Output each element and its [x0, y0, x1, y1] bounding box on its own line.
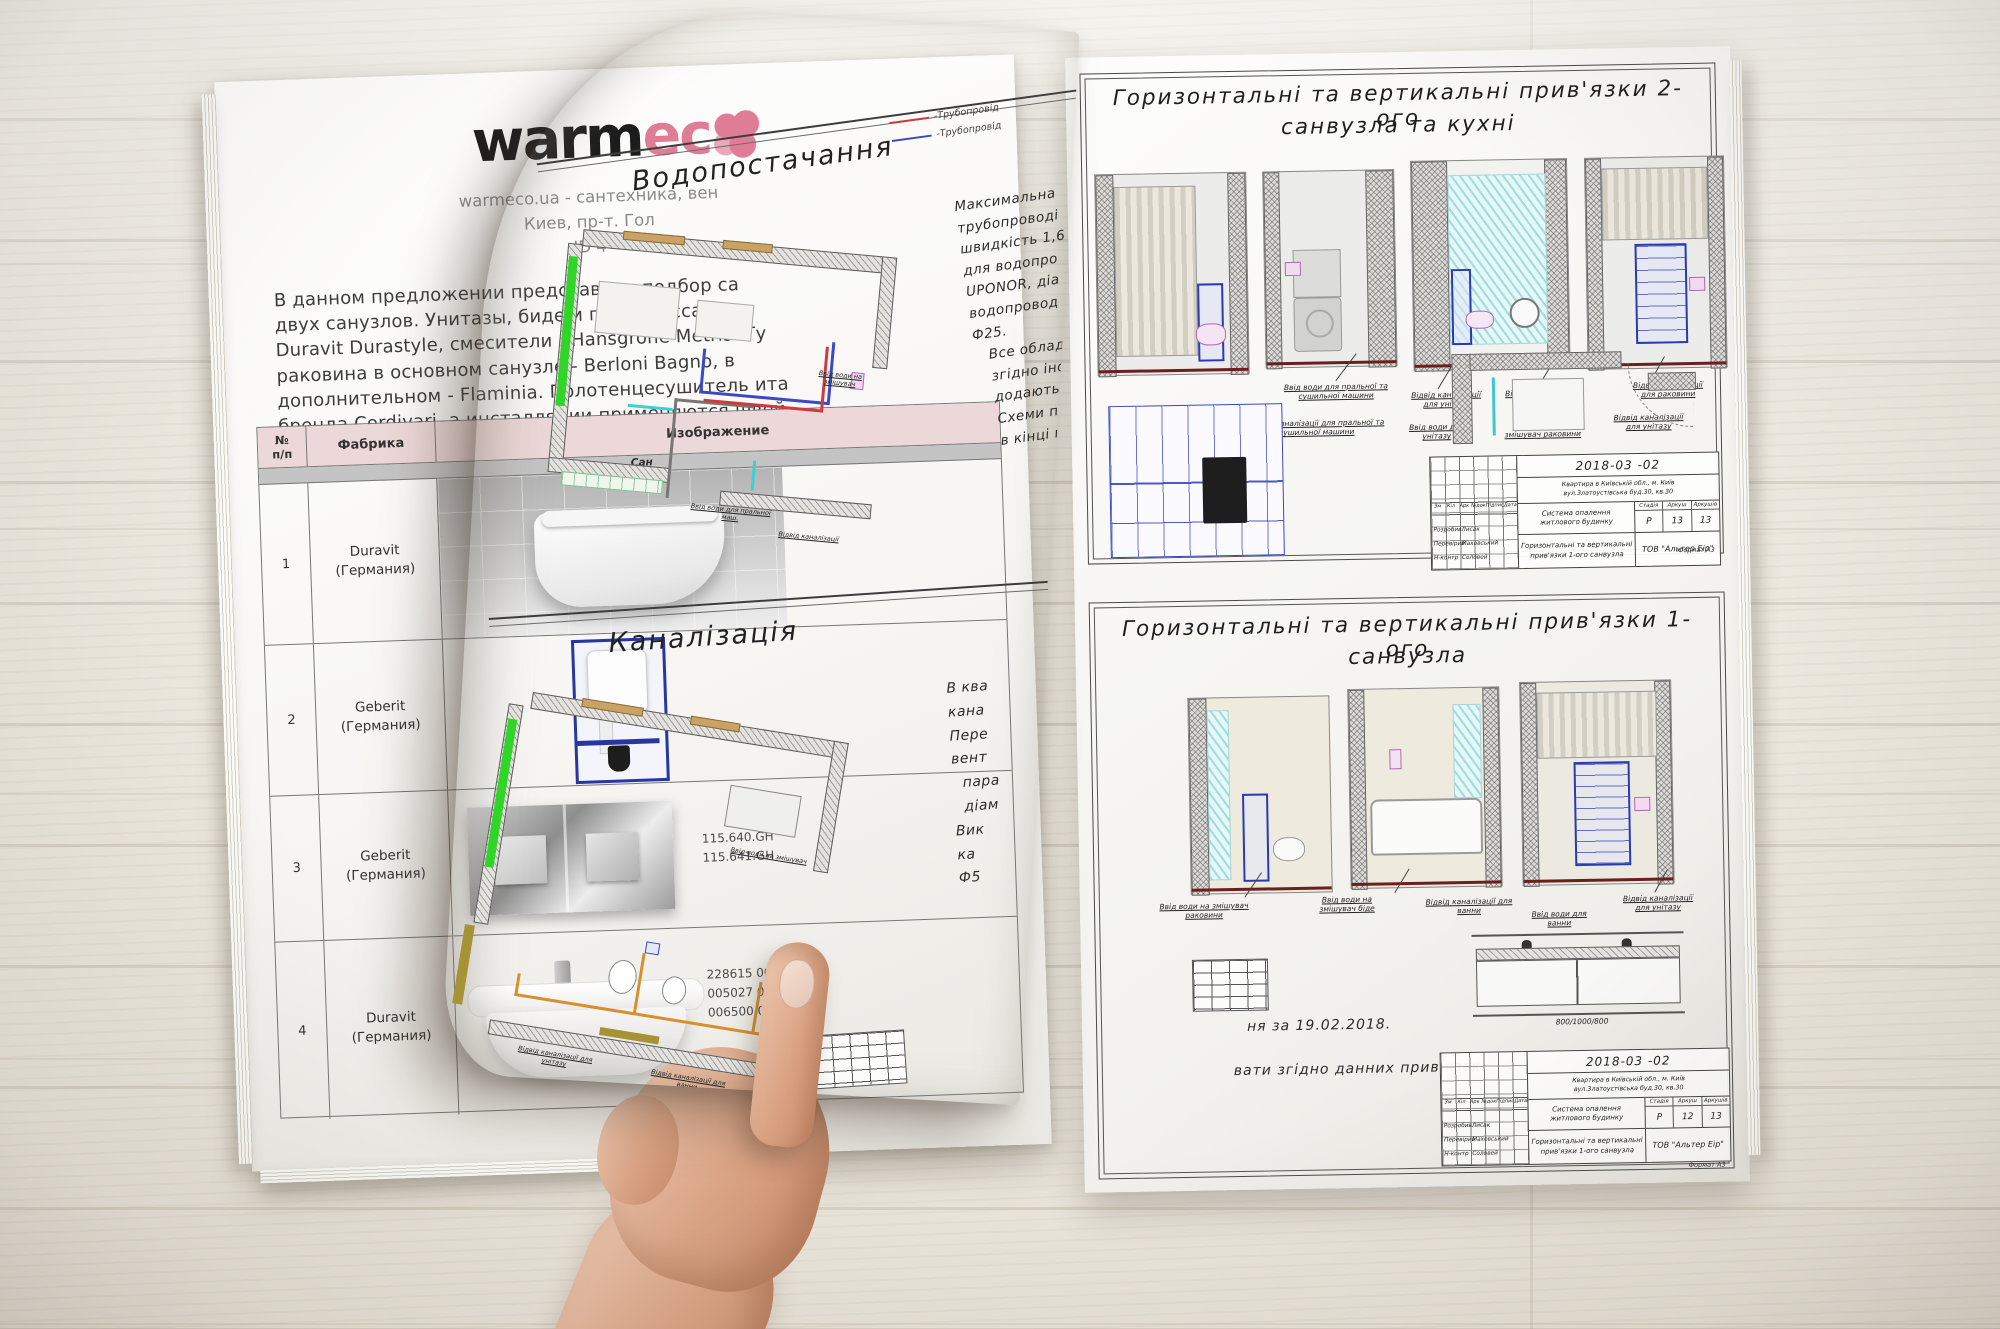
- col-header-num: № п/п: [257, 426, 307, 468]
- cabinet-outline: [1476, 957, 1681, 1007]
- curtain-area: [1113, 186, 1198, 357]
- annotation-label: Ввід води на змішувач раковини: [1159, 901, 1249, 921]
- stage-header: Стадія: [1645, 1097, 1672, 1106]
- row-brand: Geberit (Германия): [314, 640, 448, 794]
- title-block-stamp: Зм Кіл Арк №док Підпис Дата Розробив Лис…: [1440, 1047, 1732, 1166]
- format-label: Формат А3: [1678, 546, 1715, 555]
- section-detail: [1451, 332, 1699, 444]
- stamp-doc-title: Горизонтальні та вертикальні прив'язки 1…: [1529, 1129, 1647, 1164]
- wall-hatch: [1263, 172, 1282, 369]
- stamp-system: Система опалення житлового будинку: [1528, 1098, 1646, 1130]
- water-notes: Максимальна трубопроводі швидкість 1,6 д…: [953, 178, 1079, 454]
- valve-magenta: [1689, 277, 1705, 291]
- stamp-col: Кіл: [1455, 1099, 1468, 1105]
- total-header: Аркушів: [1702, 1096, 1729, 1105]
- wall-hatch: [1348, 690, 1367, 890]
- stamp-role: Розробив: [1444, 1123, 1472, 1129]
- stamp-object-line: вул.Златоустівська буд.30, кв.30: [1574, 1084, 1684, 1094]
- toilet-unit: [1242, 793, 1270, 881]
- furniture-outline: [594, 281, 680, 340]
- stamp-name: Лисак: [1472, 1123, 1490, 1129]
- floor-line: [1099, 368, 1249, 374]
- legend-label: -Трубопровід: [936, 120, 1002, 140]
- floor-line: [1524, 877, 1674, 883]
- glass-strip: [1452, 704, 1482, 798]
- dimension-text: 800/1000/800: [1537, 1016, 1627, 1027]
- stamp-grid-headers: Зм Кіл Арк №док Підпис Дата: [1431, 502, 1517, 510]
- stamp-object-line: вул.Златоустівська буд.30, кв.30: [1563, 488, 1673, 498]
- stamp-grid-headers: Зм Кіл Арк №док Підпис Дата: [1441, 1098, 1527, 1106]
- total-value: 13: [1702, 1105, 1730, 1126]
- stamp-col: Підпис: [1496, 1098, 1514, 1104]
- stamp-col: №док: [1481, 1099, 1496, 1105]
- wall-hatch: [1411, 161, 1451, 372]
- brand-name: Duravit: [349, 541, 399, 562]
- stamp-system-line: житлового будинку: [1540, 517, 1613, 527]
- row-num: 4: [275, 941, 330, 1121]
- valve-magenta: [1634, 797, 1650, 811]
- total-header: Аркушів: [1692, 501, 1719, 510]
- dim-line: [1473, 1011, 1685, 1016]
- flipping-page: Водопостачання -Трубопровід -Трубопровід: [440, 0, 1079, 1105]
- row-brand: Duravit (Германия): [324, 936, 459, 1118]
- annotation-label: Ввід води на змішувач біде: [1305, 894, 1389, 914]
- stage-header: Стадія: [1635, 502, 1662, 511]
- elevation-view: [1094, 172, 1250, 377]
- bathtub-shape: [1370, 798, 1483, 856]
- door-swing-arc: [1628, 362, 1694, 428]
- stamp-col: Дата: [1504, 502, 1517, 508]
- elevation-view: [1519, 679, 1675, 886]
- row-num: 3: [270, 795, 324, 942]
- sheet-value: 12: [1674, 1106, 1702, 1127]
- elevation-view: [1347, 686, 1502, 889]
- wall-hatch: [1365, 170, 1396, 367]
- basin-outline: [1273, 837, 1305, 862]
- stamp-col: Зм: [1441, 1099, 1454, 1105]
- pipe-blue: [699, 348, 706, 393]
- stamp-name: Соловей: [1472, 1151, 1498, 1157]
- installation-frame-unit: [1574, 761, 1632, 866]
- stamp-stage-block: СтадіяР Аркуш12 Аркушів13: [1645, 1096, 1730, 1127]
- kitchen-elevation: [1108, 403, 1285, 558]
- stamp-signature-grid: Зм Кіл Арк №док Підпис Дата Розробив Лис…: [1441, 1052, 1530, 1166]
- sewer-title: Каналізація: [608, 616, 799, 660]
- wall-hatch: [1482, 687, 1501, 887]
- row-num: 2: [265, 644, 319, 796]
- stamp-col: Арк: [1468, 1099, 1481, 1105]
- stamp-col: №док: [1471, 503, 1486, 509]
- stamp-object: Квартира в Київській обл., м. Київ вул.З…: [1518, 475, 1719, 505]
- annotation-label: Ввід води для пральної та сушильної маши…: [1282, 381, 1390, 402]
- stamp-name: Маховський: [1462, 540, 1499, 547]
- stamp-doc-title: Горизонтальні та вертикальні прив'язки 1…: [1519, 533, 1637, 568]
- stamp-role: Н-контр: [1444, 1151, 1468, 1157]
- stamp-col: Дата: [1514, 1098, 1527, 1104]
- floor-line: [1352, 880, 1502, 886]
- partial-stamp-grid: [812, 1029, 907, 1089]
- stamp-name: Лисак: [1461, 527, 1479, 533]
- basin-plan-outline: [660, 975, 688, 1006]
- oven-shape: [1202, 457, 1247, 524]
- legend-red-line: [889, 116, 929, 123]
- plan-label: Ввід води на змішувач: [730, 846, 808, 866]
- stamp-name: Соловей: [1462, 555, 1488, 561]
- toilet-plan-outline: [606, 958, 639, 996]
- stamp-doc-line: прив'язки 1-ого санвузла: [1530, 550, 1624, 561]
- plan-wall: [813, 741, 849, 874]
- photo-scene: warmec warmeco.ua - сантехника, вен Киев…: [0, 0, 2000, 1329]
- wall-hatch: [1469, 351, 1621, 371]
- stamp-col: Арк: [1458, 503, 1471, 509]
- partial-stamp-grid: [1192, 958, 1269, 1011]
- mixer-magenta: [1389, 749, 1401, 769]
- wall-hatch: [1227, 173, 1249, 375]
- curtain-area: [1601, 167, 1708, 241]
- floor-line: [1192, 886, 1332, 891]
- sheet-value: 13: [1663, 510, 1691, 531]
- col-header-num-line: п/п: [272, 447, 293, 462]
- installation-frame-unit: [1634, 243, 1688, 344]
- sewer-notes: В ква кана Пере вент пара діам Вик ка Ф5: [946, 671, 1070, 892]
- drawing-frame-line: [489, 581, 1048, 620]
- stamp-object: Квартира в Київській обл., м. Київ вул.З…: [1528, 1070, 1729, 1100]
- brand-country: (Германия): [335, 560, 415, 582]
- curtain-area: [1536, 691, 1657, 759]
- sheet-header: Аркуш: [1674, 1097, 1701, 1106]
- elevation-view: [1187, 695, 1332, 894]
- format-label: Формат А3: [1688, 1161, 1725, 1170]
- sheet2-frame: Горизонтальні та вертикальні прив'язки 1…: [1089, 591, 1735, 1179]
- stamp-name: Маховський: [1472, 1136, 1509, 1143]
- stamp-role: Н-контр: [1434, 555, 1458, 561]
- brand-name: Duravit: [366, 1008, 416, 1029]
- plan-label: Відвід каналізації: [768, 529, 848, 544]
- col-header-num-line: №: [275, 433, 289, 447]
- row-num: 1: [259, 483, 314, 645]
- bathtub-plan-outline: [724, 785, 802, 838]
- stamp-signature-grid: Зм Кіл Арк №док Підпис Дата Розробив Лис…: [1430, 456, 1519, 570]
- right-document: Горизонтальні та вертикальні прив'язки 2…: [1065, 46, 1750, 1192]
- pipe-cyan: [628, 404, 673, 411]
- stamp-main: 2018-03 -02 Квартира в Київській обл., м…: [1528, 1048, 1731, 1163]
- stamp-doc-line: прив'язки 1-ого санвузла: [1540, 1146, 1634, 1157]
- pipe-cyan: [751, 460, 757, 490]
- stamp-company: ТОВ "Альтер Еір": [1646, 1127, 1731, 1161]
- toilet-outline: [1196, 323, 1226, 346]
- annotation-label: Ввід води для ванни: [1523, 909, 1595, 929]
- furniture-outline: [694, 300, 754, 342]
- total-value: 13: [1692, 510, 1720, 531]
- toilet-outline: [1466, 310, 1494, 328]
- water-supply-section: Водопостачання -Трубопровід -Трубопровід: [533, 62, 1080, 602]
- stamp-role: Перевірив: [1444, 1137, 1475, 1144]
- vanity-dimension-drawing: 800/1000/800: [1452, 931, 1706, 1035]
- plan-wall: [530, 692, 841, 759]
- wall-hatch: [1707, 156, 1727, 368]
- brand-country: (Германия): [346, 864, 426, 886]
- legend-blue-line: [892, 134, 932, 141]
- row-brand: Duravit (Германия): [308, 479, 443, 643]
- sheet-header: Аркуш: [1663, 501, 1690, 510]
- faucet-dot: [1522, 940, 1532, 948]
- water-floor-plan: Ввід води для пральної маш. Відвід канал…: [532, 227, 952, 611]
- annotation-label: Відвід каналізації для ванни: [1425, 896, 1513, 916]
- plan-label: Ввід води на змішувач: [802, 368, 877, 391]
- stage-value: Р: [1646, 1106, 1674, 1127]
- stage-value: Р: [1635, 511, 1663, 532]
- stamp-system-line: житлового будинку: [1550, 1113, 1623, 1123]
- valve-magenta: [1285, 262, 1301, 276]
- brand-name: Geberit: [355, 697, 406, 718]
- faucet-dot: [1622, 938, 1632, 946]
- wall-hatch: [1654, 680, 1674, 884]
- toilet-unit: [1451, 269, 1472, 345]
- elevation-view: [1262, 169, 1397, 368]
- fixture-blue: [645, 941, 661, 955]
- sheet1-frame: Горизонтальні та вертикальні прив'язки 2…: [1079, 63, 1723, 565]
- olive-wall-strip: [452, 924, 475, 1005]
- glass-strip: [1207, 710, 1232, 880]
- plan-wall: [872, 256, 897, 369]
- brand-country: (Германия): [351, 1026, 431, 1048]
- cyan-pipe: [1492, 377, 1496, 435]
- partition-line: [666, 398, 678, 498]
- annotation-label: Відвід каналізації для унітазу: [1615, 893, 1701, 913]
- stamp-col: Кіл: [1444, 503, 1457, 509]
- stamp-role: Розробив: [1433, 527, 1461, 533]
- col-header-brand: Фабрика: [306, 422, 436, 466]
- stamp-role: Перевірив: [1434, 541, 1465, 548]
- sheet2-note1: ня за 19.02.2018.: [1247, 1016, 1391, 1035]
- thumbnail: [777, 958, 817, 1010]
- fixture-outline: [1512, 378, 1585, 431]
- stamp-col: Зм: [1431, 503, 1444, 509]
- pipe-orange: [514, 973, 520, 995]
- stamp-col: Підпис: [1486, 502, 1504, 508]
- stamp-stage-block: СтадіяР Аркуш13 Аркушів13: [1635, 501, 1720, 532]
- row-brand: Geberit (Германия): [319, 791, 453, 940]
- brand-name: Geberit: [360, 846, 411, 867]
- brand-country: (Германия): [341, 715, 421, 737]
- legend: -Трубопровід -Трубопровід: [889, 102, 1002, 146]
- stamp-system: Система опалення житлового будинку: [1518, 502, 1636, 534]
